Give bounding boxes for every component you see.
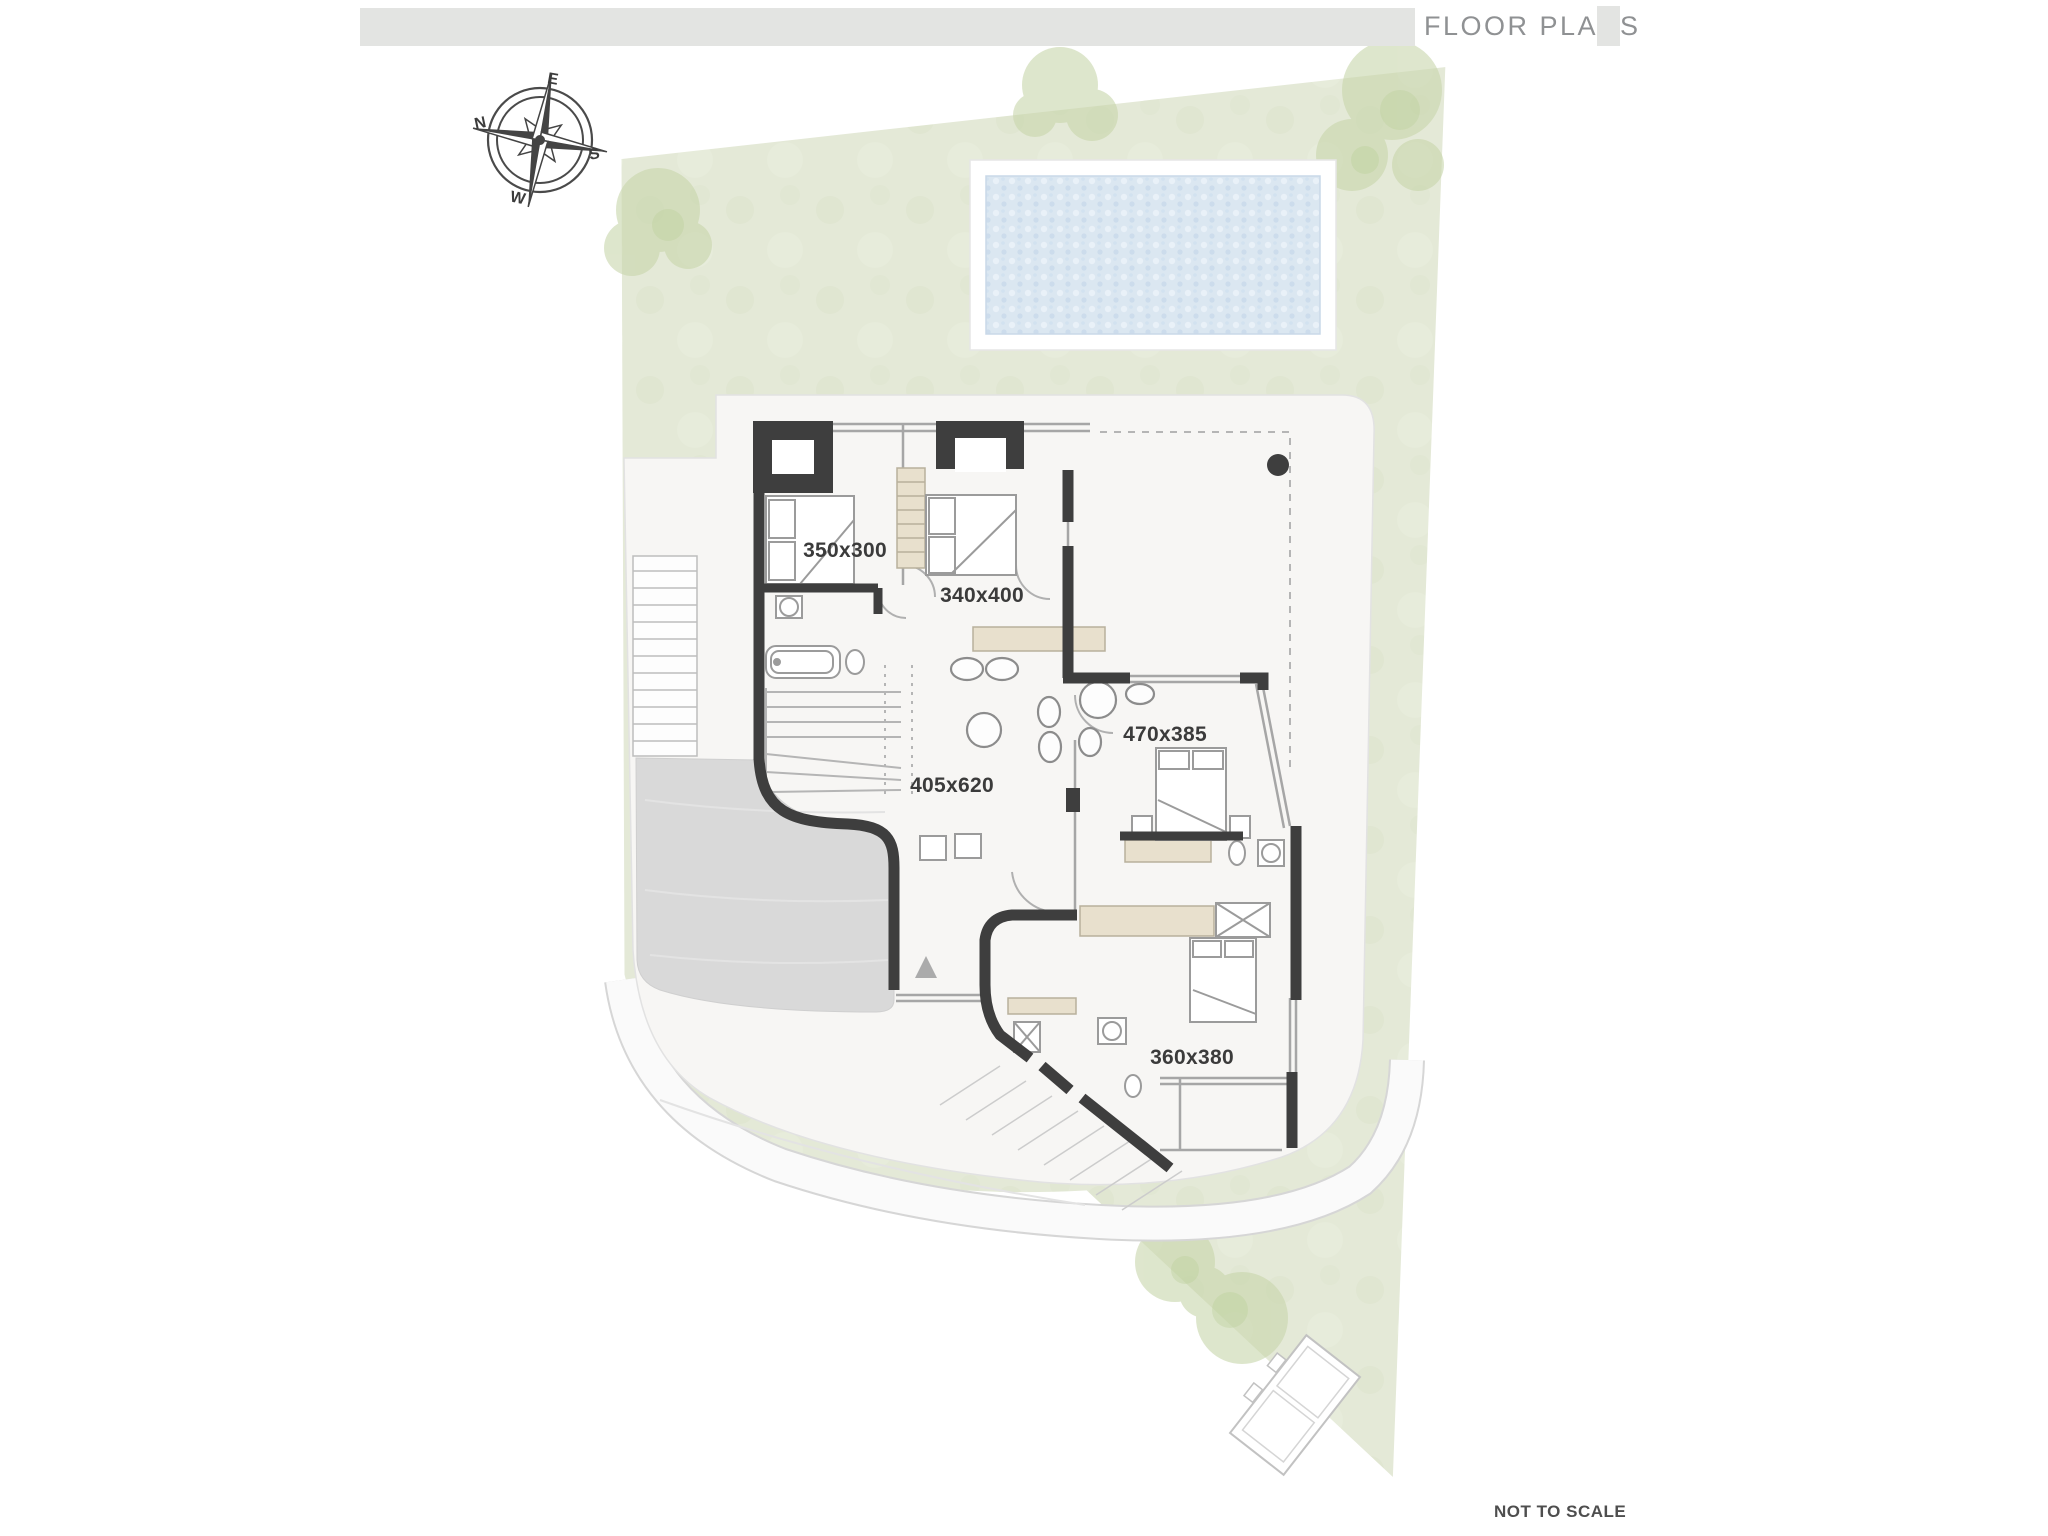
compass-north-label: N — [473, 114, 488, 133]
compass-star — [461, 61, 619, 219]
compass-rose: N E S W — [455, 58, 631, 234]
terrace-column — [1267, 454, 1289, 476]
floor-plan-page: N E S W FLOOR PLANS 350x300 340x400 405x… — [0, 0, 2048, 1536]
room-label-living-area: 405x620 — [910, 774, 994, 798]
room-label-bedroom-2: 340x400 — [940, 584, 1024, 608]
compass-south-label: S — [587, 145, 601, 164]
swimming-pool — [970, 160, 1336, 350]
room-label-bedroom-4: 360x380 — [1150, 1046, 1234, 1070]
header-bar — [360, 8, 1415, 46]
compass-west-label: W — [509, 189, 528, 209]
room-label-bedroom-3: 470x385 — [1123, 723, 1207, 747]
compass-east-label: E — [546, 70, 560, 89]
side-staircase — [633, 556, 697, 756]
room-label-bedroom-1: 350x300 — [803, 539, 887, 563]
scale-note: NOT TO SCALE — [1494, 1502, 1626, 1522]
site-plan — [0, 0, 2048, 1536]
header-accent-square — [1597, 6, 1620, 46]
